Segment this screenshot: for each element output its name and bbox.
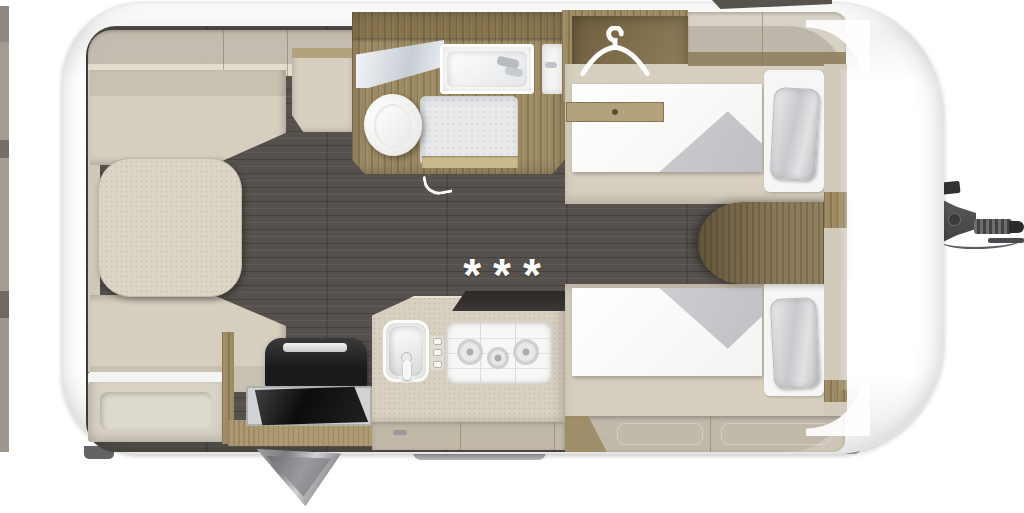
refrigerator-cavity: [246, 386, 372, 426]
tow-hitch-bolt: [948, 213, 961, 226]
storage-chest-lid: [100, 392, 212, 430]
entry-door-inner-panel: [252, 446, 344, 508]
washbasin-reflection-faucet: [545, 62, 557, 68]
hob-knob: [433, 338, 442, 345]
cabinet-handle: [393, 430, 407, 435]
dinette-table: [98, 158, 242, 297]
body-curve-overlay: [838, 70, 864, 390]
duvet-fold: [572, 288, 762, 376]
three-burner-hob: [446, 322, 552, 384]
wardrobe-drawer: [566, 102, 664, 122]
washbasin-reflection: [542, 44, 563, 94]
hob-burner-left: [457, 339, 483, 365]
dinette-side-cabinet: [292, 48, 354, 132]
hob-knob: [433, 361, 442, 368]
bathroom-sill: [422, 156, 518, 168]
duvet-fold: [572, 84, 762, 172]
kitchen-lower-cabinets: [372, 422, 565, 450]
hanger-icon: [576, 26, 654, 86]
caravan-floorplan: ***: [0, 0, 1024, 513]
duvet-bottom-bed: [572, 288, 762, 376]
tow-hitch-handle: [988, 238, 1024, 243]
refrigerator-handle: [283, 343, 347, 352]
duvet-top-bed: [572, 84, 762, 172]
pillow-top-bed: [770, 87, 821, 181]
bathroom-top-wall: [352, 12, 565, 38]
basin-divider: [534, 44, 542, 94]
hob-symbols-label: ***: [438, 252, 578, 298]
locker-divider: [223, 30, 224, 76]
refrigerator-open-flap: [246, 386, 372, 426]
storage-chest: [88, 372, 228, 442]
toilet: [362, 86, 428, 160]
lower-lockers-bed: [565, 416, 845, 452]
kitchen-faucet: [403, 360, 411, 380]
entry-door-open: [252, 446, 344, 508]
bed-foot-panel: [565, 416, 607, 452]
locker-front: [617, 423, 703, 445]
background-edge-strip: [0, 6, 9, 452]
locker-divider: [762, 12, 763, 66]
refrigerator: [265, 338, 367, 392]
hob-burner-right: [513, 339, 539, 365]
hob-knob: [433, 349, 442, 356]
hob-burner-center: [487, 347, 509, 369]
cabinet-divider: [554, 422, 555, 450]
locker-divider: [287, 30, 288, 76]
locker-divider: [710, 416, 711, 452]
cabinet-divider: [460, 422, 461, 450]
drawer-knob: [612, 109, 618, 115]
hob-control-knobs: [430, 336, 444, 370]
